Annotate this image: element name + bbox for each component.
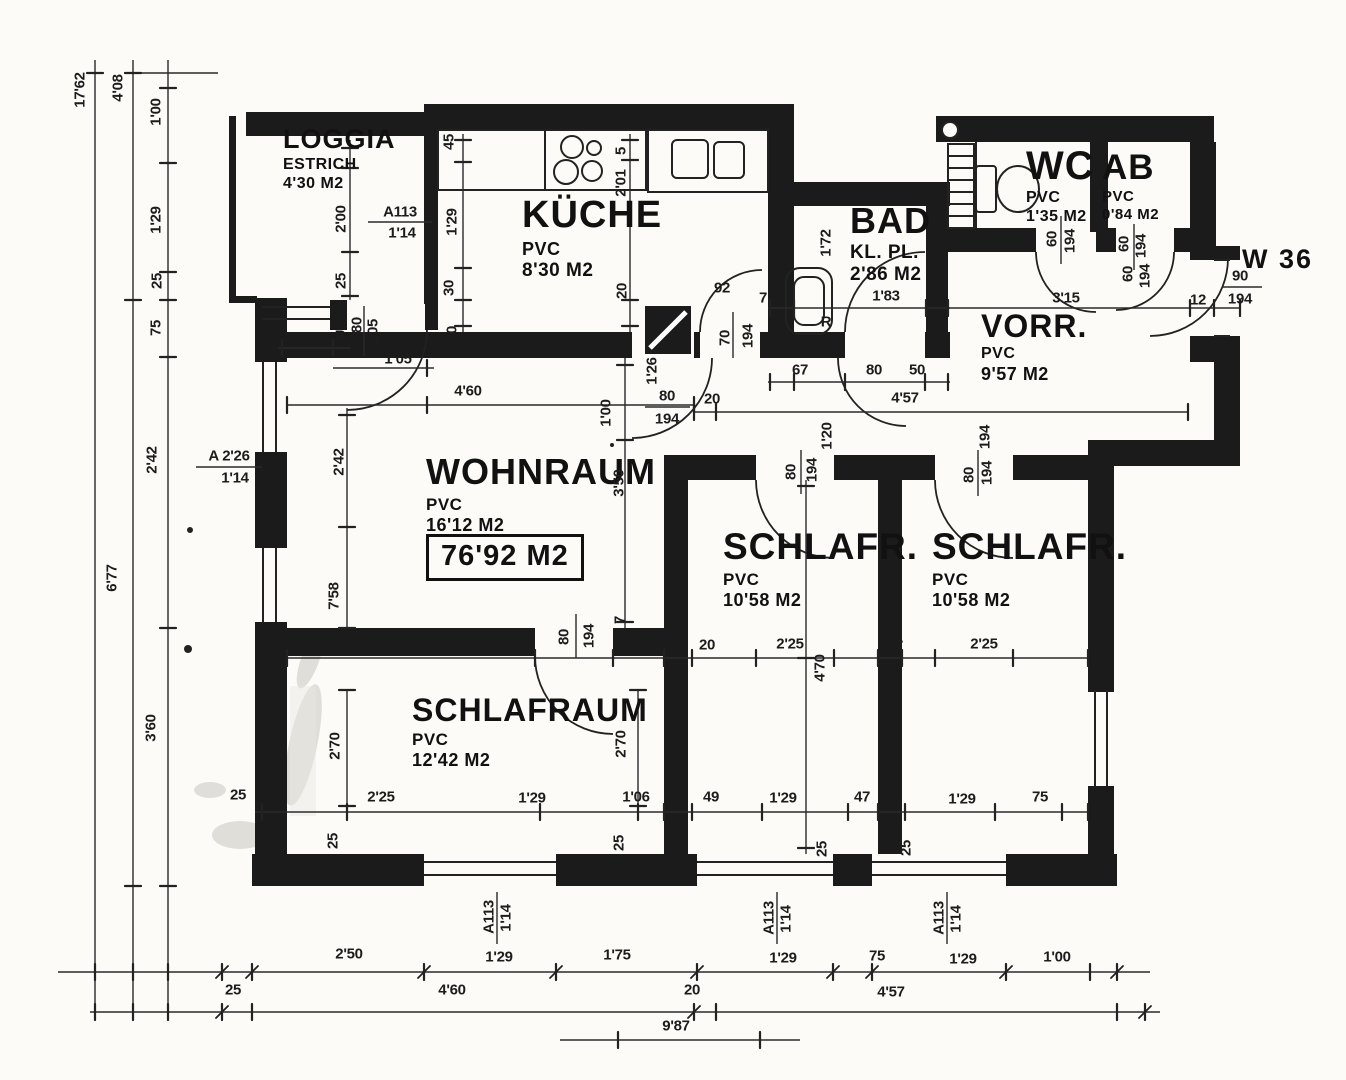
- stove-burner: [582, 161, 602, 181]
- dimension-label: 1'00: [1043, 950, 1070, 965]
- door-label: 80: [962, 467, 977, 483]
- window-label: 1'14: [221, 471, 248, 486]
- dimension-label: 1'06: [622, 790, 649, 805]
- room-name: WC: [1026, 146, 1095, 187]
- dimension-label: 7: [613, 616, 628, 624]
- room-name: VORR.: [981, 310, 1087, 343]
- room-label-loggia: LOGGIA ESTRICH 4'30 M2: [283, 126, 396, 192]
- room-area: 16'12 M2: [426, 516, 656, 534]
- room-name: AB: [1102, 150, 1159, 186]
- dimension-label: 5: [614, 147, 629, 155]
- dimension-label: 2'25: [776, 637, 803, 652]
- dimension-label: 25: [326, 833, 341, 849]
- window-label: A113: [932, 901, 947, 935]
- dimension-label: 1'00: [149, 98, 164, 125]
- window-label: 1'14: [388, 226, 415, 241]
- room-area: 10'58 M2: [723, 591, 918, 609]
- door-label: 80: [659, 389, 675, 404]
- dimension-label: 1'26: [645, 357, 660, 384]
- door-label: A 80: [350, 317, 365, 347]
- room-name: SCHLAFR.: [723, 528, 918, 566]
- room-floor: PVC: [1026, 190, 1095, 206]
- room-name: LOGGIA: [283, 126, 396, 154]
- dimension-label: 25: [612, 835, 627, 851]
- dimension-label: 20: [699, 638, 715, 653]
- dimension-label: 50: [300, 331, 316, 346]
- dimension-label: 2'70: [614, 730, 629, 757]
- dimension-label: 25: [815, 841, 830, 857]
- door-label: 194: [980, 461, 995, 485]
- room-label-wc: WC PVC 1'35 M2: [1026, 146, 1095, 225]
- dimension-label: 4'08: [111, 74, 126, 101]
- floor-plan-page: LOGGIA ESTRICH 4'30 M2 KÜCHE PVC 8'30 M2…: [0, 0, 1346, 1080]
- room-label-kueche: KÜCHE PVC 8'30 M2: [522, 196, 662, 280]
- dimension-label: 2'01: [614, 169, 629, 196]
- door-label: 194: [1063, 229, 1078, 253]
- room-label-bad: BAD KL. PL. 2'86 M2: [850, 203, 931, 284]
- dimension-label: 2'25: [367, 790, 394, 805]
- dimension-label: 2'42: [145, 446, 160, 473]
- room-area: 8'30 M2: [522, 261, 662, 280]
- dimension-label: 6'77: [105, 564, 120, 591]
- door-label: 194: [1138, 264, 1153, 288]
- dimension-label: 20: [684, 983, 700, 998]
- stove-burner: [554, 160, 578, 184]
- dimension-label: 1'72: [819, 229, 834, 256]
- dimension-label: 50: [909, 363, 925, 378]
- window-label: 1'14: [499, 904, 514, 931]
- dimension-label: 194: [978, 425, 993, 449]
- kitchen-door-arc: [700, 270, 762, 332]
- dimension-label: 4'60: [463, 634, 490, 649]
- room-area: 4'30 M2: [283, 176, 396, 192]
- dimension-label: 1'29: [149, 206, 164, 233]
- door-label: 90: [1232, 269, 1248, 284]
- door-label: 70: [718, 330, 733, 346]
- vent-circle: [942, 122, 958, 138]
- dimension-label: 49: [703, 790, 719, 805]
- dimension-label: 25: [899, 840, 914, 856]
- dimension-label: 1'05: [384, 352, 411, 367]
- toilet-tank: [976, 166, 996, 212]
- dimension-label: 7'58: [327, 582, 342, 609]
- dimension-label: 1'29: [769, 951, 796, 966]
- dimension-label: 1'83: [872, 289, 899, 304]
- dimension-label: 3'60: [144, 714, 159, 741]
- room-name: SCHLAFRAUM: [412, 694, 648, 727]
- dimension-label: 1'29: [769, 791, 796, 806]
- dimension-label: 4'70: [813, 654, 828, 681]
- dimension-label: 2'50: [335, 947, 362, 962]
- dimension-label: 20: [704, 392, 720, 407]
- door-label: 80: [784, 464, 799, 480]
- room-area: 10'58 M2: [932, 591, 1127, 609]
- door-label: 60: [1117, 236, 1132, 252]
- radiator-label: R: [821, 315, 832, 330]
- dimension-label: 92: [714, 281, 730, 296]
- window-label: 1'14: [949, 905, 964, 932]
- dimension-label: 4'57: [877, 985, 904, 1000]
- dimension-label: 7: [938, 291, 946, 306]
- room-area: 0'84 M2: [1102, 207, 1159, 222]
- dimension-label: 4'60: [454, 384, 481, 399]
- room-area: 9'57 M2: [981, 365, 1087, 383]
- door-label: 60: [1045, 231, 1060, 247]
- dimension-label: 25: [225, 983, 241, 998]
- dimension-label: 3'15: [1052, 291, 1079, 306]
- dimension-label: 20: [445, 326, 460, 342]
- sink-basin: [672, 140, 708, 178]
- room-label-vorr: VORR. PVC 9'57 M2: [981, 310, 1087, 383]
- stove-burner: [587, 141, 601, 155]
- dimension-label: 25: [150, 273, 165, 289]
- dimension-label: 1'20: [820, 422, 835, 449]
- dimension-label: 20: [615, 283, 630, 299]
- room-area: 1'35 M2: [1026, 209, 1095, 225]
- dimension-label: 1'29: [948, 792, 975, 807]
- dimension-label: 4'60: [438, 983, 465, 998]
- wall-texture: [290, 686, 316, 816]
- dimension-label: 75: [149, 320, 164, 336]
- door-label: 194: [582, 624, 597, 648]
- room-label-schlafr2: SCHLAFR. PVC 10'58 M2: [932, 528, 1127, 609]
- room-name: KÜCHE: [522, 196, 662, 235]
- room-floor: PVC: [723, 571, 918, 588]
- dimension-label: 47: [854, 790, 870, 805]
- dimension-label: 80: [866, 363, 882, 378]
- dimension-label: 2'25: [970, 637, 997, 652]
- room-label-schlafr1: SCHLAFR. PVC 10'58 M2: [723, 528, 918, 609]
- room-floor: PVC: [1102, 189, 1159, 204]
- dimension-label: 3'50: [612, 469, 627, 496]
- dimension-label: 1'29: [949, 952, 976, 967]
- dimension-label: 4'57: [891, 391, 918, 406]
- room-floor: PVC: [426, 496, 656, 513]
- dimension-label: 30: [442, 280, 457, 296]
- unit-number: W 36: [1242, 244, 1313, 275]
- dimension-label: 9'87: [662, 1019, 689, 1034]
- dimension-label: 2'42: [332, 448, 347, 475]
- window-label: A113: [482, 900, 497, 934]
- room-label-ab: AB PVC 0'84 M2: [1102, 150, 1159, 222]
- total-area-box: 76'92 M2: [426, 534, 584, 581]
- dimension-label: 45: [442, 134, 457, 150]
- door-label: 205: [366, 319, 381, 343]
- dimension-label: 25: [230, 788, 246, 803]
- dimension-label: 1'29: [445, 208, 460, 235]
- sink-basin: [714, 142, 744, 178]
- window-label: A113: [762, 901, 777, 935]
- room-floor: PVC: [522, 240, 662, 258]
- window-label: A 2'26: [208, 449, 249, 464]
- dimension-label: 75: [1032, 790, 1048, 805]
- dimension-label: 1'75: [603, 948, 630, 963]
- room-area: 2'86 M2: [850, 265, 931, 284]
- room-floor: PVC: [932, 571, 1127, 588]
- door-label: 194: [741, 324, 756, 348]
- radiator-label: R: [335, 329, 346, 344]
- dimension-label: 75: [869, 949, 885, 964]
- dimension-label: 67: [792, 363, 808, 378]
- door-label: 194: [805, 458, 820, 482]
- door-label: 12: [1190, 293, 1206, 308]
- room-floor: ESTRICH: [283, 157, 396, 173]
- window-label: 1'14: [779, 905, 794, 932]
- dimension-label: 7: [759, 291, 767, 306]
- dimension-label: 2'00: [334, 205, 349, 232]
- stove-burner: [561, 136, 583, 158]
- window-label: A113: [383, 205, 417, 220]
- dimension-label: 2'70: [328, 732, 343, 759]
- dimension-label: 7: [895, 639, 903, 654]
- door-label: 194: [1228, 292, 1252, 307]
- dimension-label: 1'29: [485, 950, 512, 965]
- door-label: 194: [655, 412, 679, 427]
- room-floor: PVC: [981, 346, 1087, 362]
- door-label: 60: [1121, 266, 1136, 282]
- door-label: 194: [1134, 234, 1149, 258]
- room-floor: KL. PL.: [850, 243, 931, 262]
- dimension-label: 25: [334, 273, 349, 289]
- dimension-label: 17'62: [73, 72, 88, 107]
- door-label: 80: [557, 629, 572, 645]
- room-name: BAD: [850, 203, 931, 240]
- dimension-label: 1'00: [599, 399, 614, 426]
- room-name: SCHLAFR.: [932, 528, 1127, 566]
- dimension-label: 1'29: [518, 791, 545, 806]
